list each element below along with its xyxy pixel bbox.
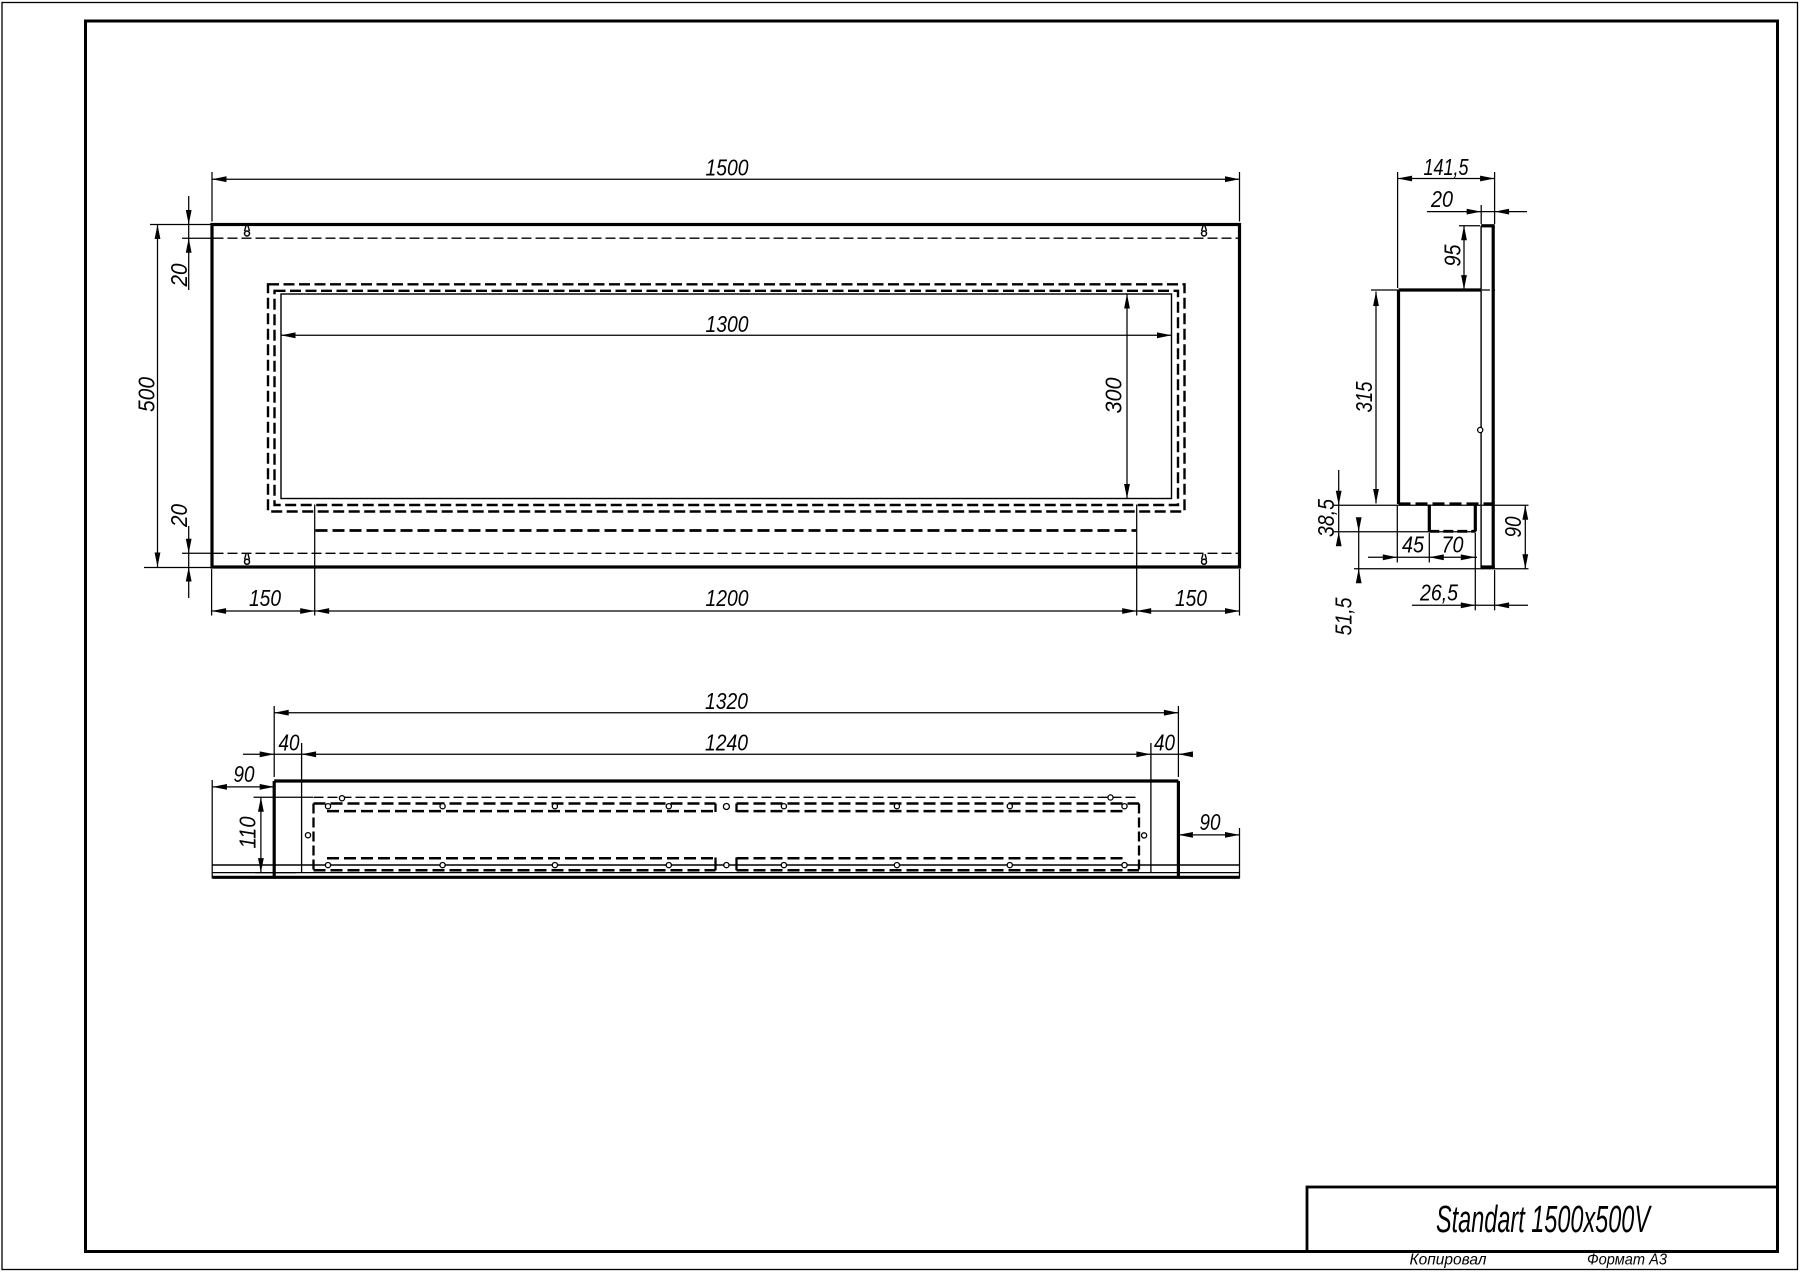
svg-text:20: 20 — [166, 504, 192, 528]
svg-text:40: 40 — [279, 730, 300, 756]
svg-text:150: 150 — [1175, 585, 1207, 611]
svg-text:110: 110 — [234, 816, 260, 848]
svg-text:Формат А3: Формат А3 — [1587, 1252, 1667, 1269]
svg-text:20: 20 — [166, 263, 192, 287]
svg-text:95: 95 — [1439, 244, 1465, 266]
svg-text:40: 40 — [1154, 730, 1175, 756]
svg-text:1300: 1300 — [706, 311, 749, 337]
svg-text:1240: 1240 — [705, 730, 748, 756]
svg-text:90: 90 — [1200, 809, 1221, 835]
svg-text:20: 20 — [1430, 186, 1453, 212]
svg-text:1200: 1200 — [706, 585, 749, 611]
svg-text:141,5: 141,5 — [1424, 154, 1469, 180]
svg-text:Копировал: Копировал — [1410, 1252, 1487, 1269]
svg-text:51,5: 51,5 — [1330, 597, 1356, 635]
svg-text:150: 150 — [249, 585, 281, 611]
svg-text:38,5: 38,5 — [1313, 499, 1339, 537]
svg-text:90: 90 — [1500, 516, 1526, 537]
svg-text:90: 90 — [234, 761, 255, 787]
svg-text:315: 315 — [1351, 381, 1377, 412]
svg-text:1500: 1500 — [706, 155, 749, 181]
svg-text:1320: 1320 — [705, 688, 748, 714]
svg-text:300: 300 — [1100, 377, 1126, 413]
svg-text:26,5: 26,5 — [1419, 580, 1458, 606]
svg-text:Standart 1500x500V: Standart 1500x500V — [1436, 1199, 1652, 1241]
svg-text:500: 500 — [133, 377, 159, 412]
svg-text:45: 45 — [1402, 531, 1424, 557]
svg-text:70: 70 — [1442, 531, 1464, 557]
